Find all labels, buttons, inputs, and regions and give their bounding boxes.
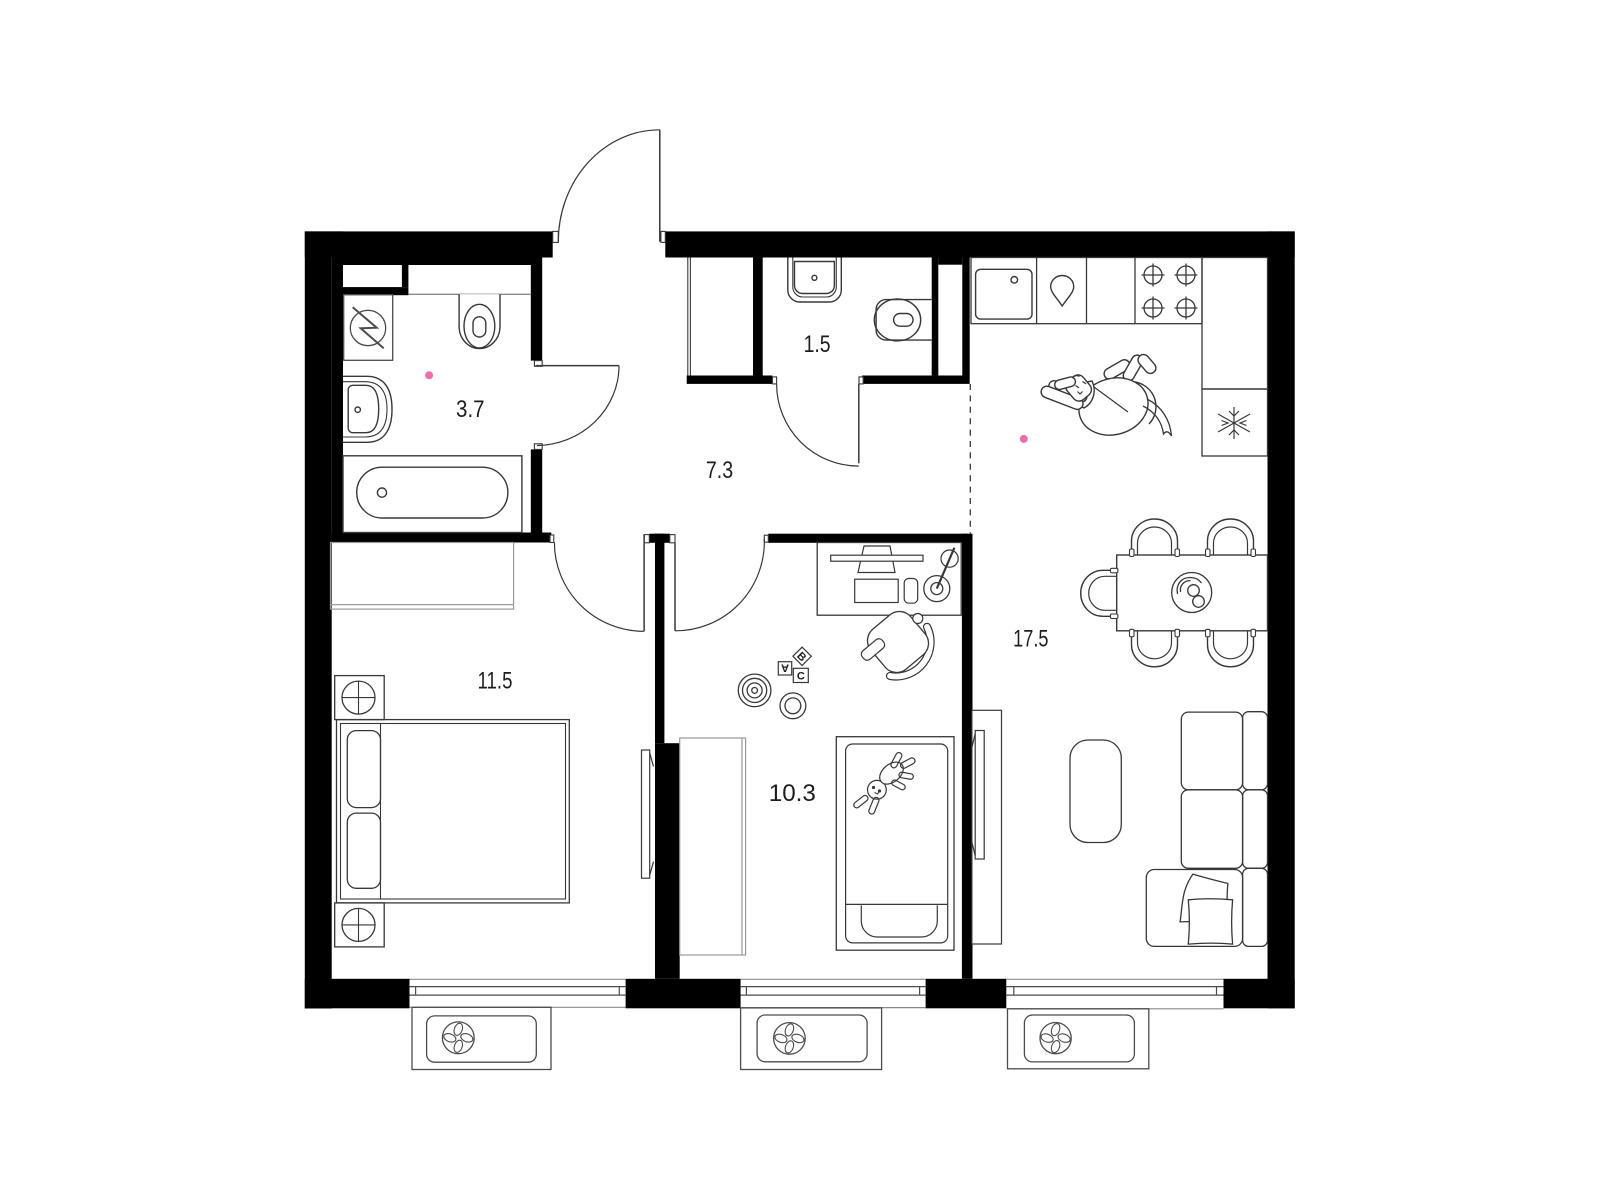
svg-text:7.3: 7.3	[706, 457, 733, 484]
svg-text:3.7: 3.7	[456, 396, 485, 423]
svg-text:17.5: 17.5	[1013, 625, 1048, 652]
svg-text:C: C	[797, 671, 805, 683]
svg-text:1.5: 1.5	[804, 331, 831, 358]
svg-text:A: A	[781, 661, 789, 673]
svg-text:10.3: 10.3	[769, 780, 816, 807]
svg-text:11.5: 11.5	[478, 668, 513, 695]
